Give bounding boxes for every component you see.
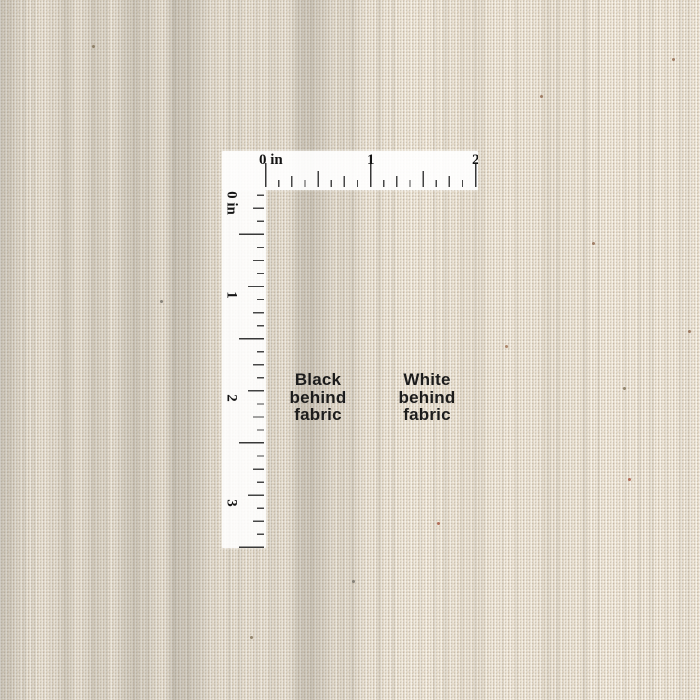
- fabric-speck: [92, 45, 95, 48]
- fabric-speck: [672, 58, 675, 61]
- fabric-streak-shading: [0, 0, 700, 700]
- label-line: Black: [258, 371, 378, 389]
- label-line: White: [367, 371, 487, 389]
- label-line: behind: [258, 389, 378, 407]
- fabric-speck: [437, 522, 440, 525]
- fabric-speck: [540, 95, 543, 98]
- ruler-label-0in: 0 in: [224, 191, 239, 215]
- fabric-speck: [688, 330, 691, 333]
- fabric-speck: [250, 636, 253, 639]
- fabric-speck: [505, 345, 508, 348]
- ruler-label-0in: 0 in: [259, 153, 283, 168]
- fabric-speck: [623, 387, 626, 390]
- ruler-label-3: 3: [224, 499, 239, 507]
- fabric-speck: [592, 242, 595, 245]
- label-white-behind-fabric: White behind fabric: [367, 371, 487, 424]
- fabric-speck: [352, 580, 355, 583]
- label-line: fabric: [258, 406, 378, 424]
- horizontal-ruler: 0 in 1 2: [222, 151, 478, 190]
- label-line: behind: [367, 389, 487, 407]
- fabric-photo: 0 in 1 2 0 in 1 2 3 Black behind fabric …: [0, 0, 700, 700]
- label-line: fabric: [367, 406, 487, 424]
- ruler-label-2: 2: [224, 394, 239, 402]
- ruler-label-1: 1: [224, 291, 239, 299]
- vertical-ruler: 0 in 1 2 3: [222, 190, 266, 548]
- label-black-behind-fabric: Black behind fabric: [258, 371, 378, 424]
- ruler-inch-ticks: [239, 190, 264, 548]
- ruler-label-1: 1: [367, 153, 375, 168]
- fabric-speck: [160, 300, 163, 303]
- ruler-label-2: 2: [472, 153, 478, 168]
- fabric-speck: [628, 478, 631, 481]
